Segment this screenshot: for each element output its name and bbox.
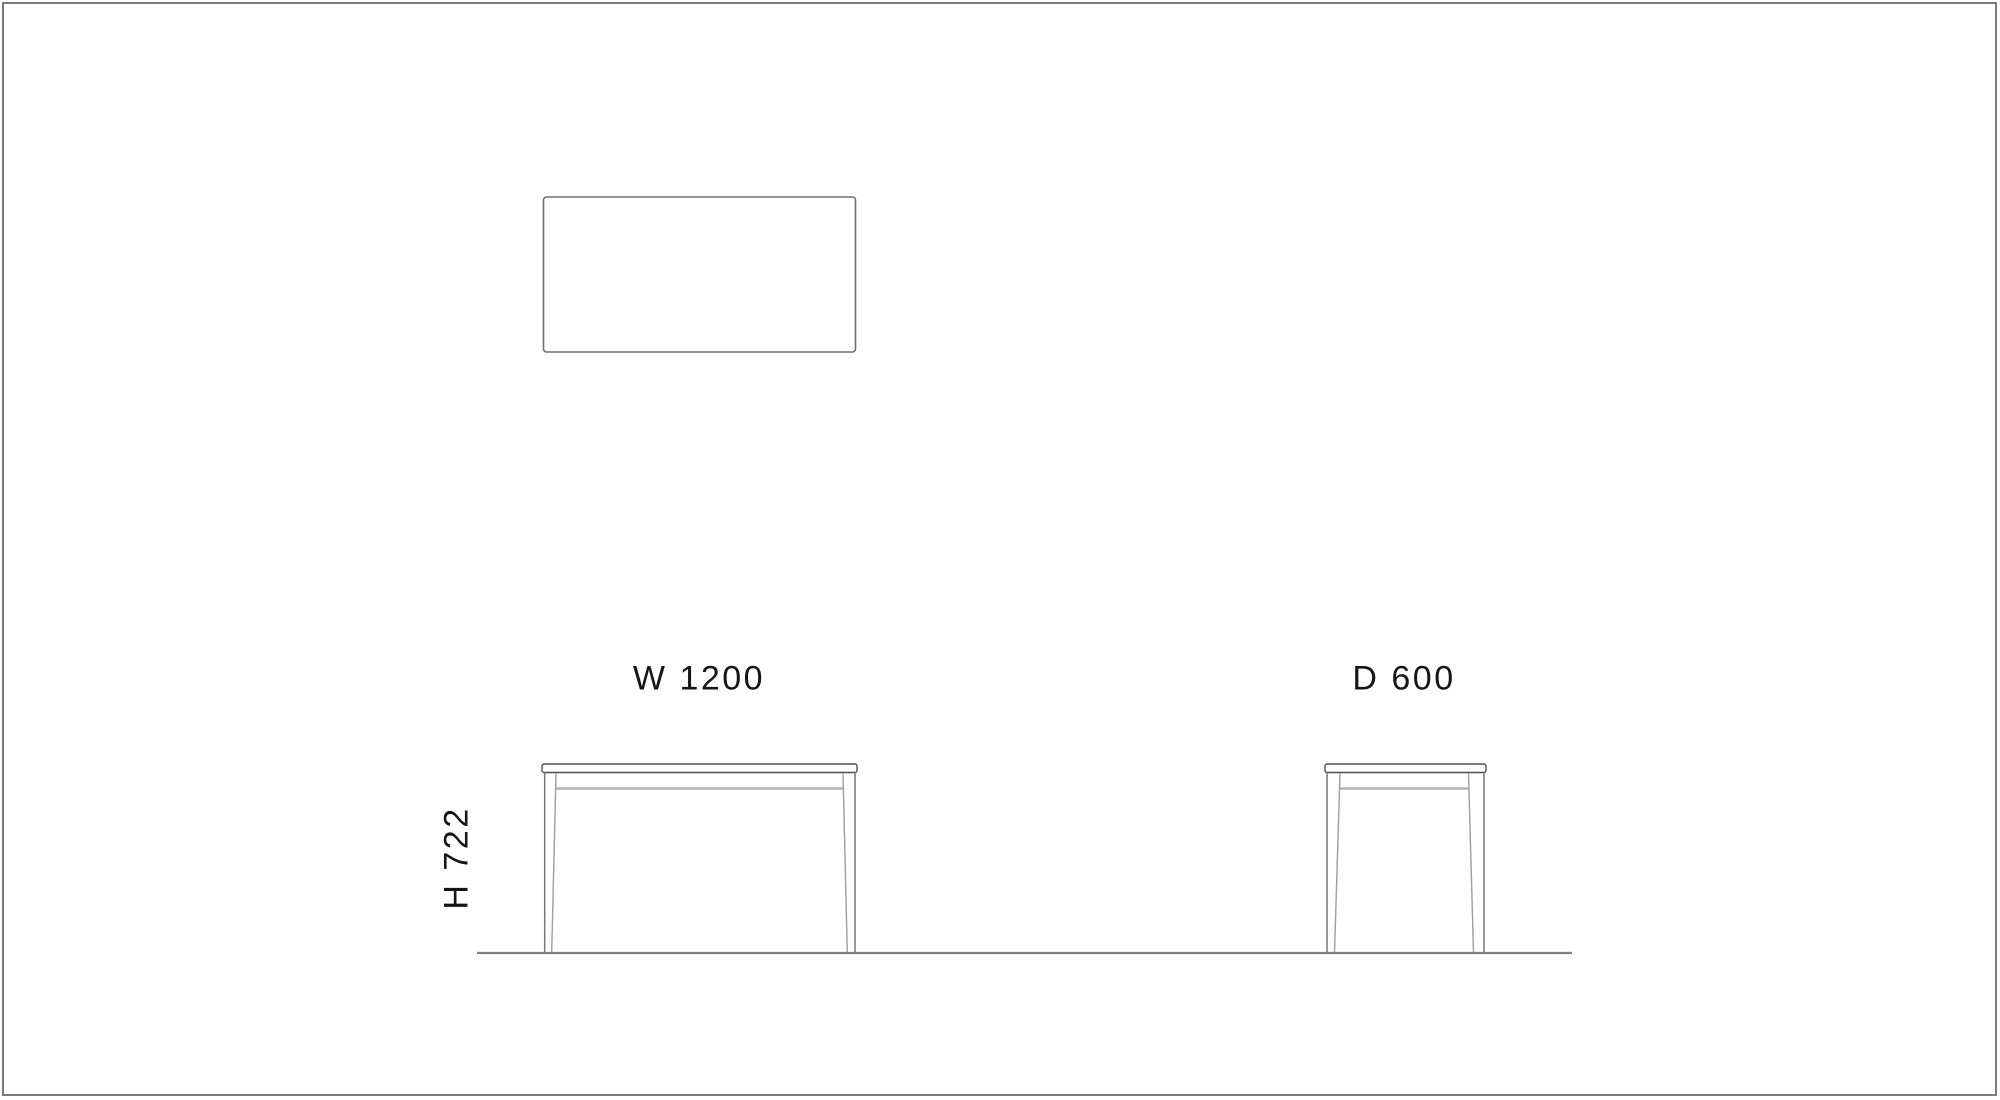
front-elevation <box>542 764 857 953</box>
tabletop-front <box>542 764 857 773</box>
front-right-leg-inner-edge <box>843 773 847 953</box>
drawing-sheet: W 1200 D 600 H 722 <box>0 0 2000 1100</box>
technical-drawing <box>0 0 2000 1100</box>
tabletop-side <box>1325 764 1486 773</box>
plan-view <box>544 197 856 352</box>
tabletop-plan-outline <box>544 197 856 352</box>
front-left-leg-inner-edge <box>552 773 556 953</box>
depth-dimension-label: D 600 <box>1352 660 1455 699</box>
side-elevation <box>1325 764 1486 953</box>
height-dimension-label: H 722 <box>438 806 477 909</box>
width-dimension-label: W 1200 <box>633 660 765 699</box>
side-left-leg-inner-edge <box>1335 773 1341 953</box>
side-right-leg-inner-edge <box>1469 773 1474 953</box>
